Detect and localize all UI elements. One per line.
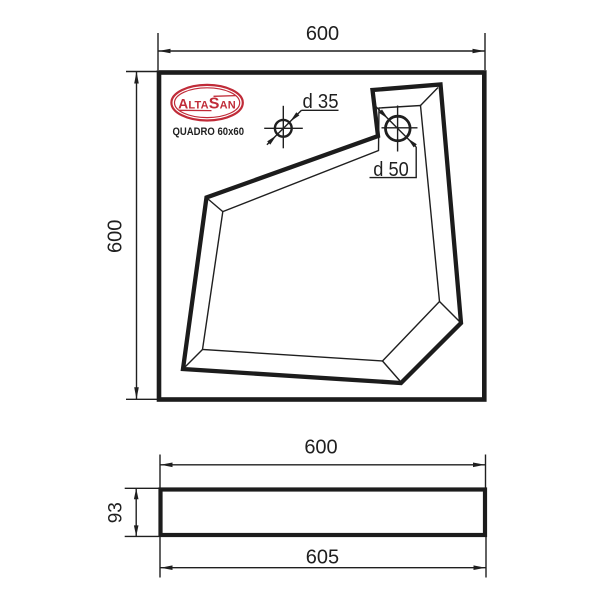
svg-text:QUADRO 60x60: QUADRO 60x60 — [173, 126, 245, 138]
svg-text:600: 600 — [306, 23, 339, 45]
svg-text:605: 605 — [306, 546, 339, 568]
svg-text:93: 93 — [105, 502, 126, 523]
svg-text:600: 600 — [304, 436, 337, 458]
svg-text:d 50: d 50 — [373, 159, 409, 181]
svg-text:600: 600 — [105, 220, 127, 253]
svg-text:d 35: d 35 — [303, 91, 339, 113]
